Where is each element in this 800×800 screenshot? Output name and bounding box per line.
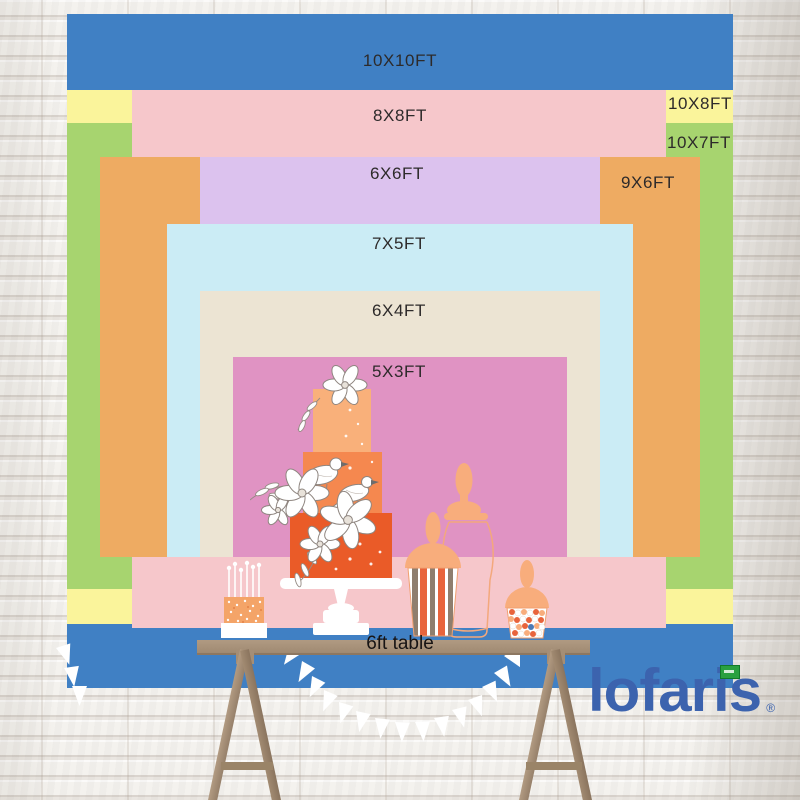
size-label-7x5ft: 7X5FT xyxy=(339,234,459,254)
size-label-10x7ft: 10X7FT xyxy=(639,133,759,153)
striped-candy-cup-icon xyxy=(402,508,464,640)
candy-cup-icon xyxy=(500,558,554,640)
three-tier-cake-icon xyxy=(250,358,420,640)
lofaris-logo: lofaris ® xyxy=(588,661,761,721)
size-label-8x8ft: 8X8FT xyxy=(340,106,460,126)
right-trestle-crossbar xyxy=(526,762,582,770)
backdrop-size-chart-image: 10X10FT 10X8FT 10X7FT 8X8FT 9X6FT 6X6FT … xyxy=(0,0,800,800)
size-label-10x10ft: 10X10FT xyxy=(340,51,460,71)
size-label-10x8ft: 10X8FT xyxy=(640,94,760,114)
size-label-6x4ft: 6X4FT xyxy=(339,301,459,321)
registered-trademark-symbol: ® xyxy=(766,702,775,714)
left-trestle-crossbar xyxy=(221,762,273,770)
table-length-label: 6ft table xyxy=(340,633,460,655)
size-label-6x6ft: 6X6FT xyxy=(337,164,457,184)
size-label-5x3ft: 5X3FT xyxy=(339,362,459,382)
size-label-9x6ft: 9X6FT xyxy=(588,173,708,193)
green-flag-icon xyxy=(720,665,740,679)
